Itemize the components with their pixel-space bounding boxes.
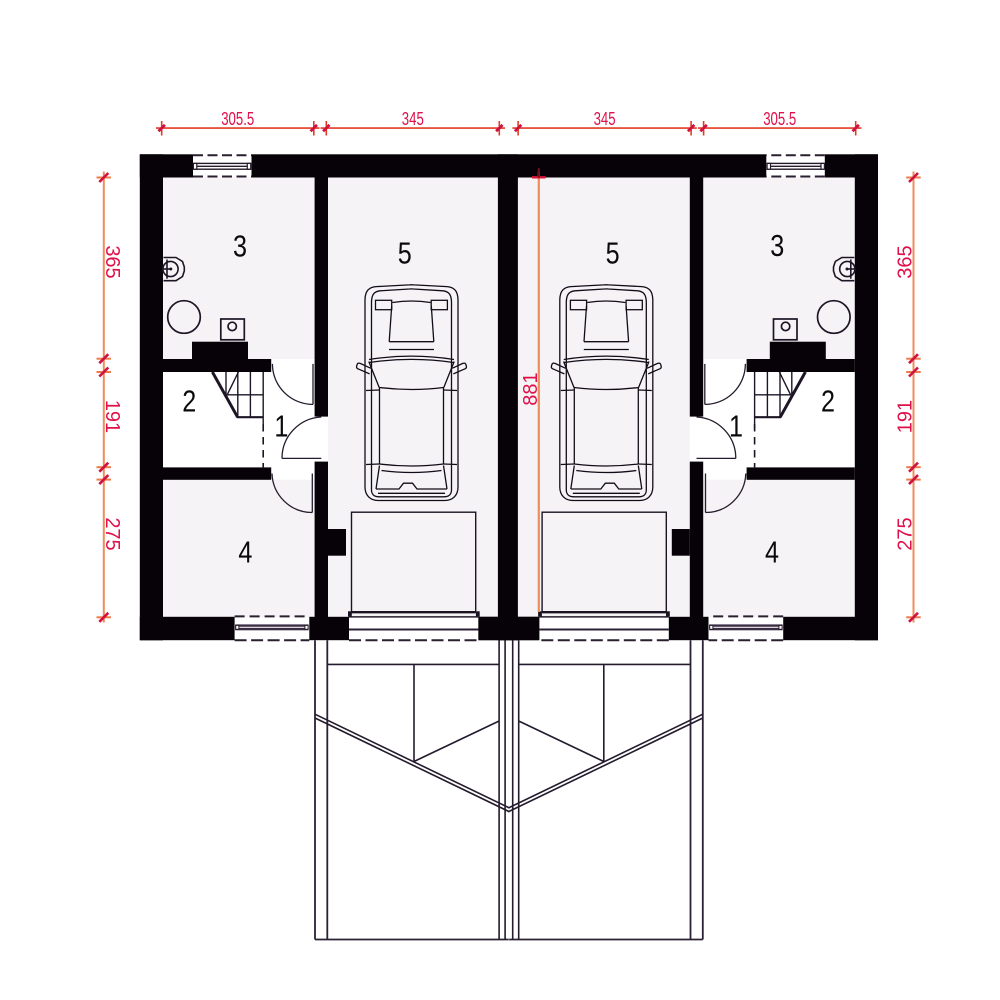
svg-text:1: 1: [274, 410, 288, 444]
svg-text:3: 3: [233, 230, 247, 264]
svg-text:881: 881: [520, 372, 542, 405]
svg-text:275: 275: [101, 517, 123, 550]
svg-text:5: 5: [606, 236, 620, 270]
svg-text:345: 345: [594, 109, 616, 129]
svg-text:275: 275: [895, 517, 917, 550]
svg-text:345: 345: [402, 109, 424, 129]
svg-text:191: 191: [895, 400, 917, 433]
svg-text:2: 2: [821, 385, 835, 419]
svg-text:305.5: 305.5: [763, 109, 796, 129]
svg-text:4: 4: [238, 536, 252, 570]
svg-text:3: 3: [770, 229, 784, 263]
svg-text:4: 4: [765, 536, 779, 570]
svg-text:191: 191: [101, 400, 123, 433]
svg-text:365: 365: [895, 245, 917, 278]
svg-text:365: 365: [101, 245, 123, 278]
svg-text:305.5: 305.5: [221, 109, 254, 129]
svg-text:1: 1: [729, 410, 743, 444]
svg-text:2: 2: [182, 385, 196, 419]
svg-text:5: 5: [398, 236, 412, 270]
